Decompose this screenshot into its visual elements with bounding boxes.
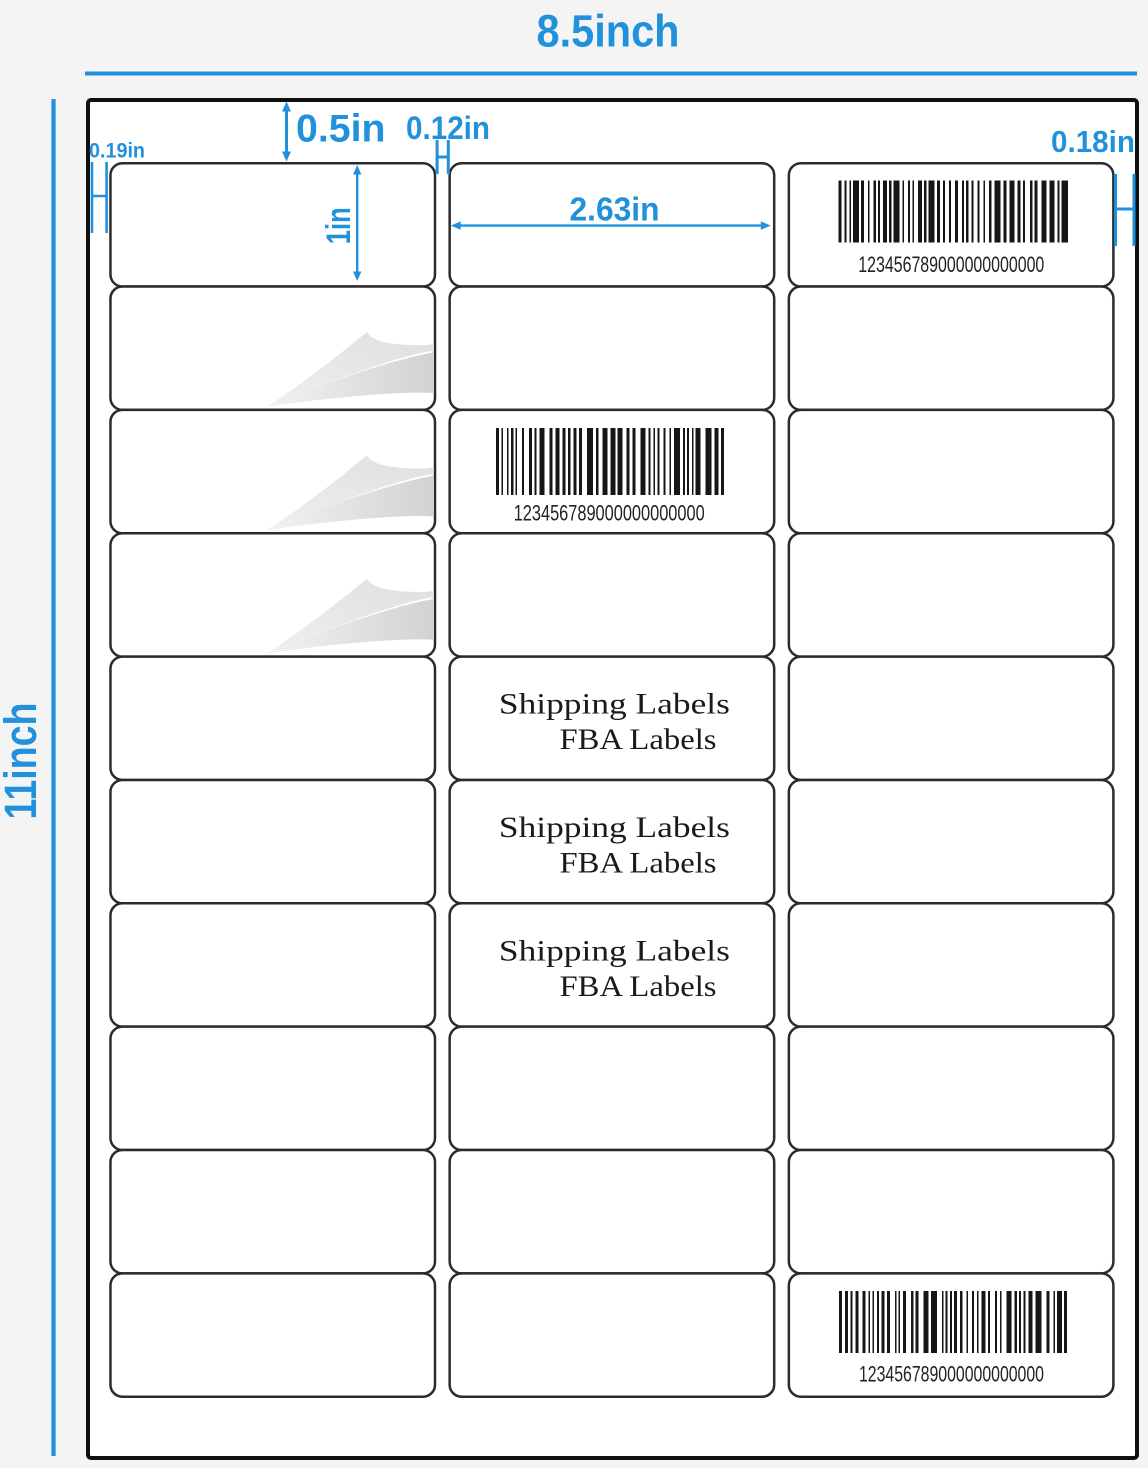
svg-text:0.19in: 0.19in bbox=[89, 140, 145, 163]
svg-text:Shipping Labels: Shipping Labels bbox=[499, 811, 730, 844]
svg-text:11inch: 11inch bbox=[0, 703, 46, 820]
svg-text:FBA Labels: FBA Labels bbox=[560, 723, 717, 756]
svg-text:0.5in: 0.5in bbox=[296, 108, 386, 151]
svg-text:Shipping Labels: Shipping Labels bbox=[499, 688, 730, 721]
svg-text:2.63in: 2.63in bbox=[570, 191, 660, 228]
svg-text:123456789000000000000: 123456789000000000000 bbox=[858, 252, 1044, 277]
svg-text:1in: 1in bbox=[320, 207, 358, 244]
svg-text:Shipping Labels: Shipping Labels bbox=[499, 934, 730, 967]
svg-text:FBA Labels: FBA Labels bbox=[560, 970, 717, 1003]
svg-text:123456789000000000000: 123456789000000000000 bbox=[514, 501, 705, 526]
svg-text:FBA Labels: FBA Labels bbox=[560, 847, 717, 880]
svg-text:8.5inch: 8.5inch bbox=[537, 6, 680, 57]
svg-text:123456789000000000000: 123456789000000000000 bbox=[859, 1362, 1044, 1387]
svg-text:0.18in: 0.18in bbox=[1051, 124, 1135, 159]
